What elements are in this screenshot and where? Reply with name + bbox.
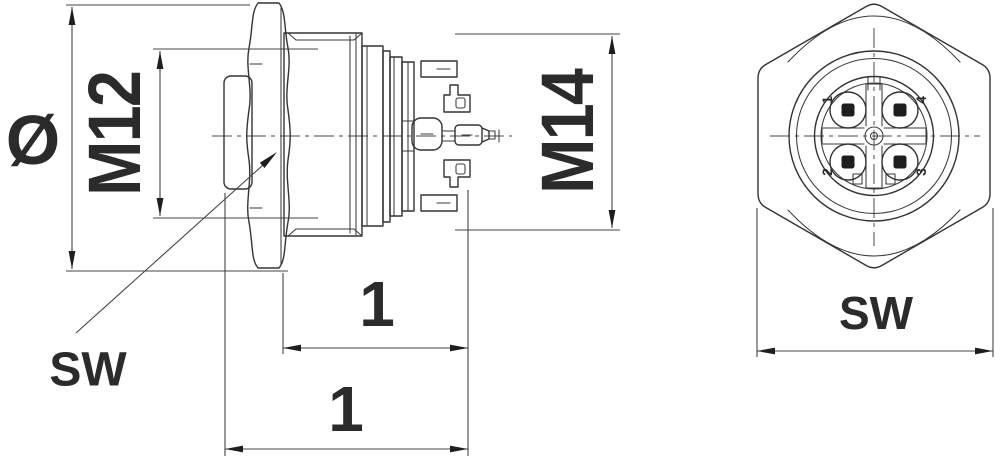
arrowhead-icon [609,36,616,54]
length-front-label: 1 [359,268,395,340]
socket-hole [842,104,855,117]
socket-hole [842,156,855,169]
arrowhead-icon [450,446,468,453]
dimension-length-overall: 1 [225,193,468,456]
arrowhead-icon [609,210,616,228]
leader-arrowhead-icon [260,152,277,168]
dimension-m14: M14 [455,34,620,230]
arrowhead-icon [450,345,468,352]
dimension-length-front: 1 [283,190,468,456]
socket-hole [894,156,907,169]
side-view: Ø M12 M14 1 [6,3,620,456]
arrowhead-icon [69,251,76,269]
front-seal [224,76,252,189]
arrowhead-icon [283,345,301,352]
length-overall-label: 1 [328,373,364,445]
pin-2-label: 2 [819,168,835,176]
pin-4-label: 4 [913,96,929,104]
wrench-size-label-side: SW [49,344,127,397]
front-view: 1 4 2 3 SW [757,4,993,357]
m12-label: M12 [72,72,155,196]
arrowhead-icon [975,348,993,355]
pin-3-label: 3 [913,168,929,176]
arrowhead-icon [225,446,243,453]
arrowhead-icon [157,198,164,216]
m14-label: M14 [525,68,608,194]
dimension-sw-front: SW [757,208,993,357]
thread-body [284,33,362,236]
arrowhead-icon [69,7,76,25]
pin-1-label: 1 [819,96,835,104]
connector-drawing: Ø M12 M14 1 [0,0,1000,458]
diameter-label: Ø [6,101,60,179]
wrench-size-label-front: SW [839,287,914,339]
arrowhead-icon [757,348,775,355]
technical-drawing-canvas: Ø M12 M14 1 [0,0,1000,458]
arrowhead-icon [157,51,164,69]
socket-hole [894,104,907,117]
